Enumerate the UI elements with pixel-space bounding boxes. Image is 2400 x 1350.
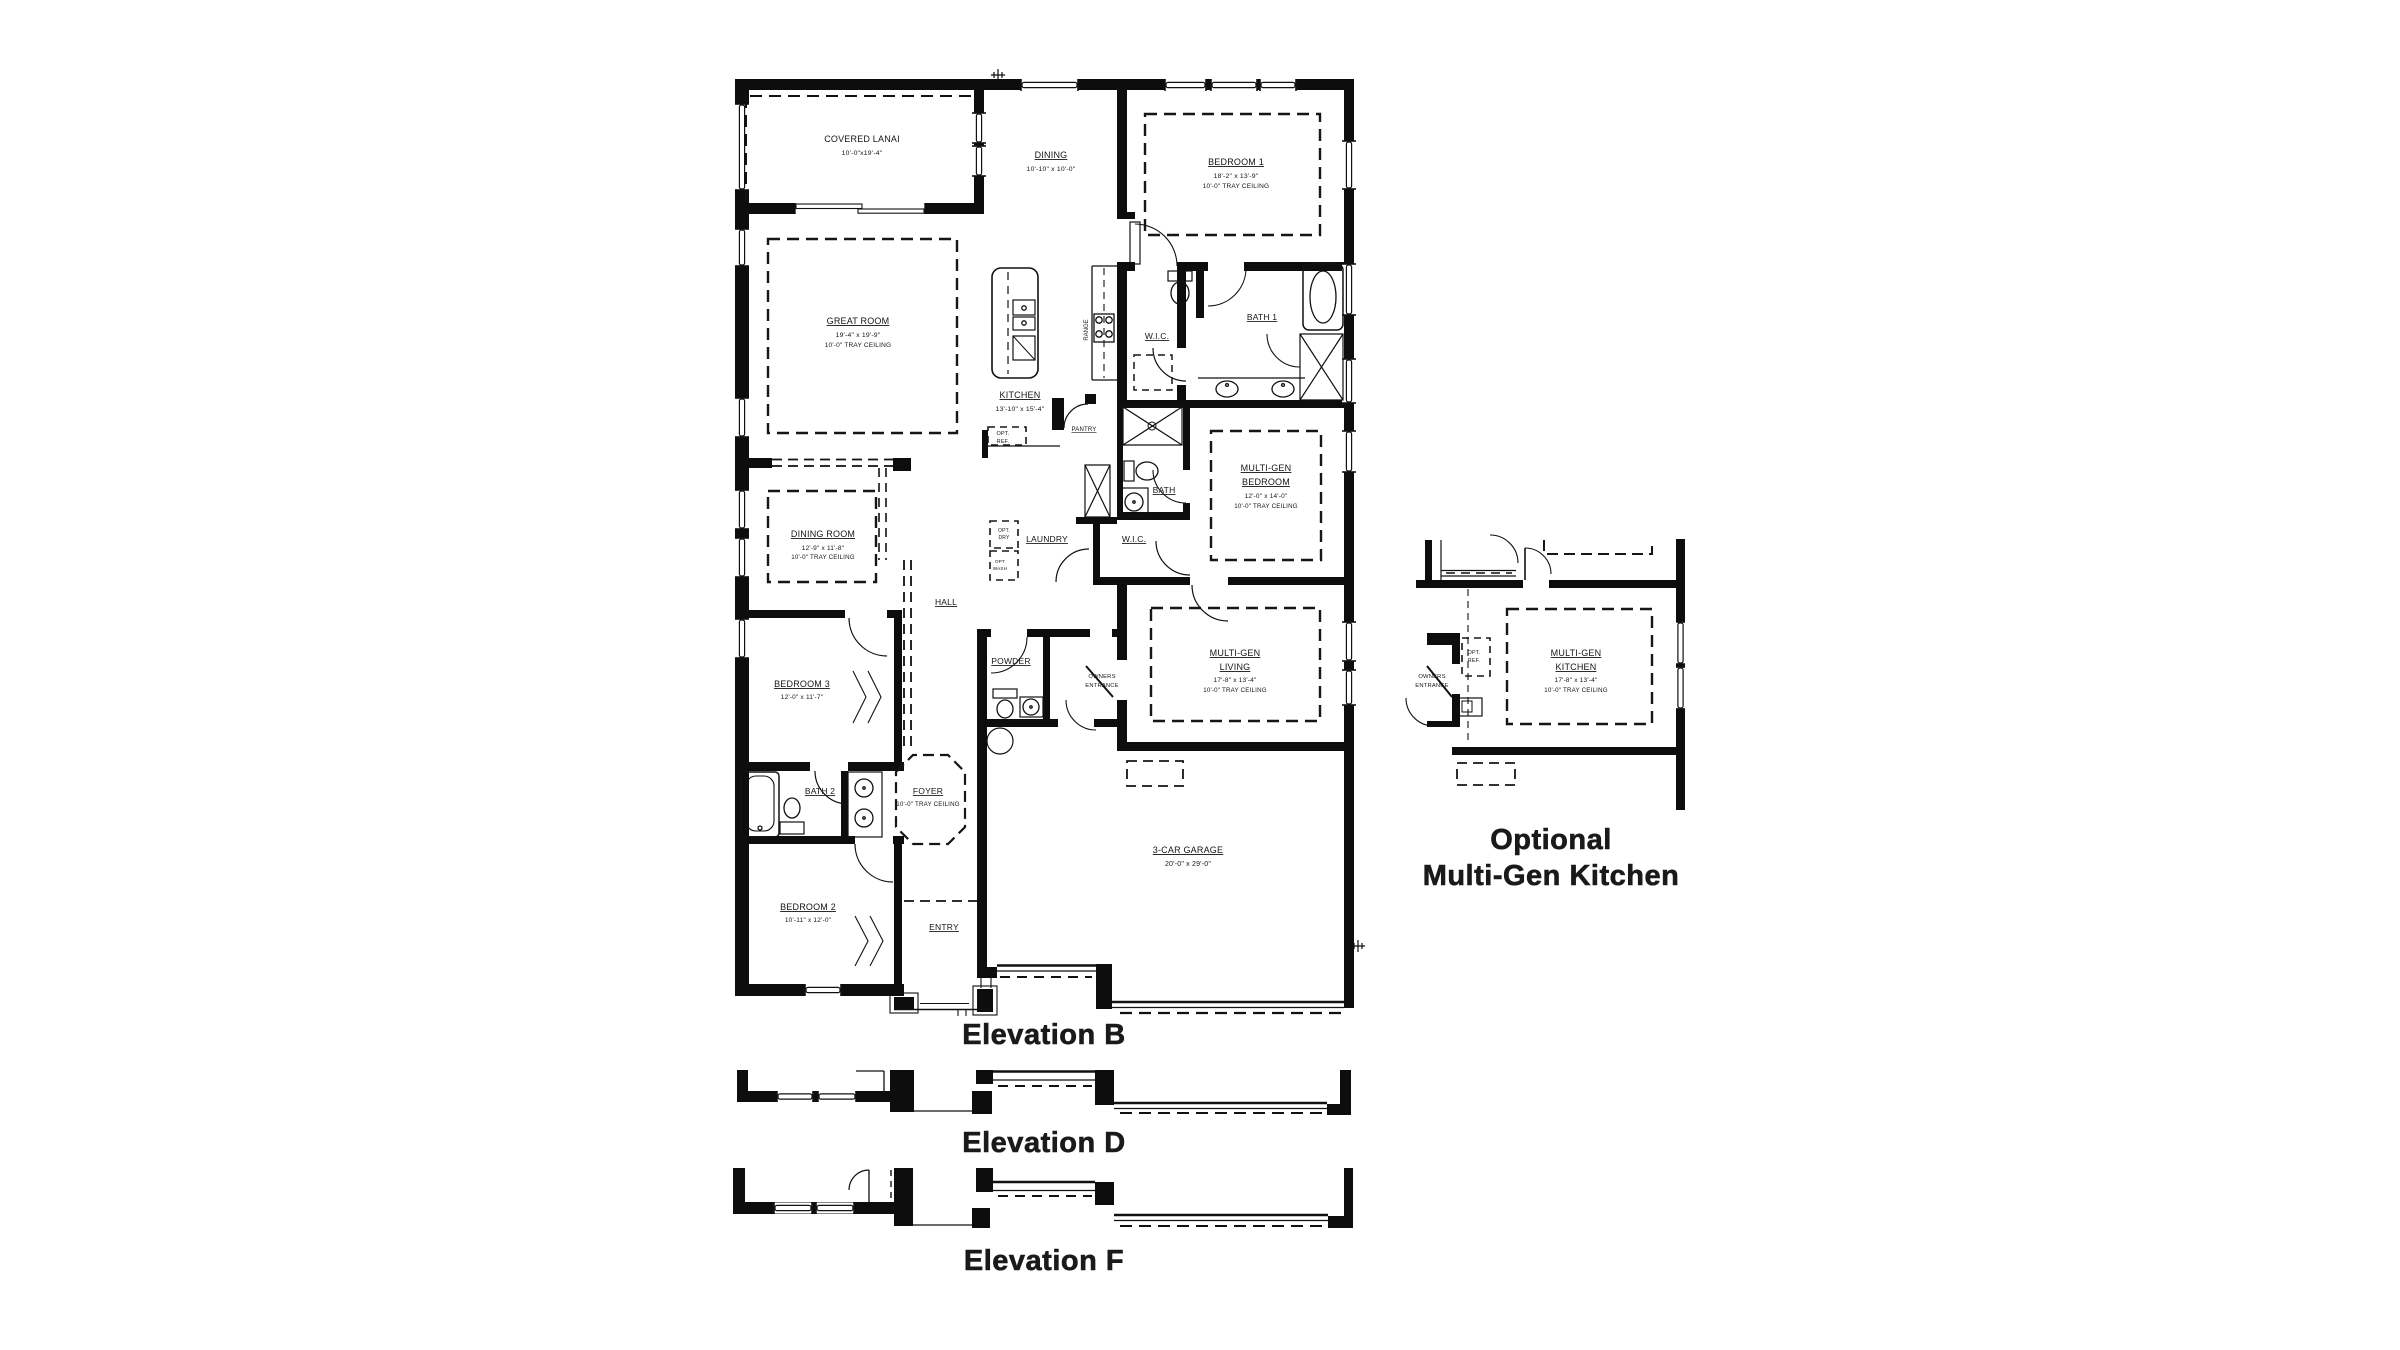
svg-text:MULTI-GEN: MULTI-GEN (1241, 463, 1292, 473)
svg-text:10'-11" x 12'-0": 10'-11" x 12'-0" (785, 917, 832, 924)
svg-text:10'-0" TRAY CEILING: 10'-0" TRAY CEILING (896, 801, 960, 808)
svg-text:OPT.: OPT. (996, 431, 1009, 437)
svg-text:10'-0"x19'-4": 10'-0"x19'-4" (842, 150, 883, 157)
svg-text:COVERED LANAI: COVERED LANAI (824, 134, 900, 144)
svg-text:13'-10" x 15'-4": 13'-10" x 15'-4" (996, 406, 1045, 413)
svg-text:POWDER: POWDER (991, 656, 1030, 666)
svg-text:HALL: HALL (935, 597, 957, 607)
svg-text:BEDROOM 1: BEDROOM 1 (1208, 157, 1264, 167)
svg-text:20'-0" x 29'-0": 20'-0" x 29'-0" (1165, 861, 1211, 868)
svg-text:3-CAR GARAGE: 3-CAR GARAGE (1153, 845, 1223, 855)
svg-text:10'-0" TRAY CEILING: 10'-0" TRAY CEILING (1203, 183, 1270, 190)
svg-text:REF.: REF. (997, 439, 1010, 445)
svg-text:12'-0" x 11'-7": 12'-0" x 11'-7" (781, 694, 824, 701)
svg-text:DINING ROOM: DINING ROOM (791, 529, 855, 539)
svg-text:Elevation B: Elevation B (962, 1019, 1125, 1051)
svg-text:RANGE: RANGE (1084, 319, 1090, 340)
svg-text:ENTRANCE: ENTRANCE (1085, 683, 1119, 689)
svg-text:OPT: OPT (995, 559, 1005, 564)
svg-text:17'-8" x 13'-4": 17'-8" x 13'-4" (1214, 677, 1257, 684)
svg-text:10'-0" TRAY CEILING: 10'-0" TRAY CEILING (1544, 687, 1608, 694)
svg-text:OPT.: OPT. (998, 528, 1010, 534)
svg-text:OWNERS: OWNERS (1418, 674, 1445, 680)
svg-text:W.I.C.: W.I.C. (1122, 534, 1146, 544)
svg-text:12'-9" x 11'-8": 12'-9" x 11'-8" (802, 545, 845, 552)
svg-text:MULTI-GEN: MULTI-GEN (1210, 648, 1261, 658)
svg-text:10'-0" TRAY CEILING: 10'-0" TRAY CEILING (825, 342, 892, 349)
svg-text:BATH 1: BATH 1 (1247, 312, 1277, 322)
svg-text:19'-4" x 19'-9": 19'-4" x 19'-9" (836, 332, 881, 339)
svg-text:BEDROOM 2: BEDROOM 2 (780, 902, 836, 912)
svg-text:12'-0" x 14'-0": 12'-0" x 14'-0" (1245, 493, 1288, 500)
svg-text:W.I.C.: W.I.C. (1145, 331, 1169, 341)
svg-text:Multi-Gen Kitchen: Multi-Gen Kitchen (1423, 860, 1680, 892)
svg-text:GREAT ROOM: GREAT ROOM (827, 316, 890, 326)
svg-text:MULTI-GEN: MULTI-GEN (1551, 648, 1602, 658)
svg-text:10'-0" TRAY CEILING: 10'-0" TRAY CEILING (1203, 687, 1267, 694)
svg-text:PANTRY: PANTRY (1072, 427, 1097, 433)
svg-text:FOYER: FOYER (913, 786, 943, 796)
svg-text:17'-8" x 13'-4": 17'-8" x 13'-4" (1555, 677, 1598, 684)
svg-text:10'-0" TRAY CEILING: 10'-0" TRAY CEILING (1234, 503, 1298, 510)
svg-text:10'-0" TRAY CEILING: 10'-0" TRAY CEILING (791, 554, 855, 561)
svg-text:KITCHEN: KITCHEN (1556, 662, 1597, 672)
svg-text:LIVING: LIVING (1220, 662, 1251, 672)
svg-text:18'-2" x 13'-9": 18'-2" x 13'-9" (1214, 173, 1259, 180)
svg-text:10'-10" x 10'-0": 10'-10" x 10'-0" (1027, 166, 1076, 173)
svg-text:OWNERS: OWNERS (1088, 674, 1115, 680)
svg-text:OPT.: OPT. (1467, 650, 1480, 656)
svg-text:KITCHEN: KITCHEN (1000, 390, 1041, 400)
svg-text:WASH: WASH (993, 566, 1007, 571)
svg-text:DRY: DRY (998, 535, 1010, 541)
svg-text:BATH 2: BATH 2 (805, 786, 835, 796)
svg-text:ENTRANCE: ENTRANCE (1415, 683, 1449, 689)
svg-text:BEDROOM 3: BEDROOM 3 (774, 679, 830, 689)
svg-text:LAUNDRY: LAUNDRY (1026, 534, 1068, 544)
svg-text:Elevation D: Elevation D (962, 1127, 1125, 1159)
svg-text:REF.: REF. (1468, 658, 1481, 664)
svg-text:Elevation F: Elevation F (964, 1245, 1124, 1277)
svg-text:Optional: Optional (1490, 824, 1612, 856)
svg-text:BATH: BATH (1153, 485, 1176, 495)
svg-text:ENTRY: ENTRY (929, 922, 959, 932)
svg-text:DINING: DINING (1035, 150, 1068, 160)
svg-text:BEDROOM: BEDROOM (1242, 477, 1290, 487)
